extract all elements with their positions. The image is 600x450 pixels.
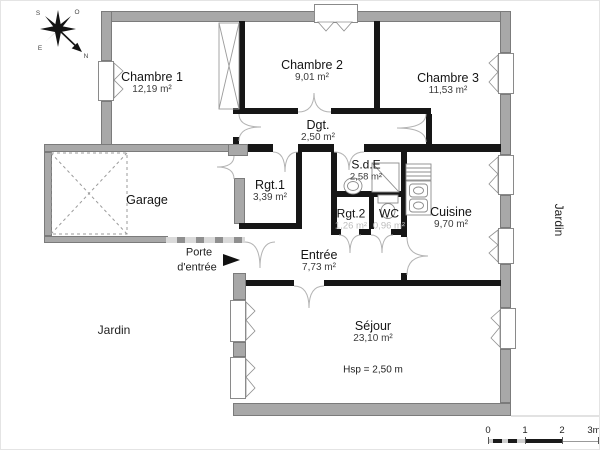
- window-sejour-left-1: [230, 300, 246, 342]
- room-area: 9,70 m²: [430, 219, 472, 231]
- room-area: 2,50 m²: [301, 132, 335, 144]
- entry-arrow-icon: [223, 254, 240, 266]
- exterior-wall-left-lower: [101, 101, 112, 145]
- scale-bar-segment-line: [562, 441, 598, 442]
- scale-bar-tick-mark-3: [598, 437, 599, 444]
- hall-wall-seg2: [298, 144, 334, 152]
- room-label-rgt1: Rgt.1 3,39 m²: [253, 178, 287, 204]
- scale-bar-dash-1: [493, 439, 502, 443]
- exterior-wall-right-5: [500, 349, 511, 403]
- room-label-chambre2: Chambre 2 9,01 m²: [281, 58, 343, 84]
- room-area: 11,53 m²: [417, 85, 479, 97]
- parking-spot-marking: [51, 153, 127, 234]
- scale-bar-dash-2: [508, 439, 517, 443]
- garage-wall-top: [44, 144, 233, 152]
- rgt1-wall-left-corner: [228, 144, 248, 156]
- room-area: 12,19 m²: [121, 84, 183, 96]
- chambre2-chambre3-wall: [374, 21, 380, 114]
- exterior-wall-top: [101, 11, 511, 22]
- sejour-wall-left-b: [233, 342, 246, 357]
- rgt1-wall-right: [296, 152, 302, 229]
- window-sejour-left-2: [230, 357, 246, 399]
- room-name: Chambre 2: [281, 58, 343, 72]
- room-area: 2,58 m²: [350, 172, 382, 183]
- scale-tick-1-label: 1: [522, 425, 527, 436]
- kitchen-sink-symbol: [406, 181, 431, 215]
- scale-tick-3-label: 3m: [587, 425, 600, 436]
- compass-south-label: S: [36, 10, 41, 17]
- room-area: 7,73 m²: [301, 262, 338, 274]
- room-area: 3,39 m²: [253, 192, 287, 204]
- front-fence-dashed-wall: [166, 237, 245, 243]
- window-sejour-right: [500, 308, 516, 349]
- rgt1-wall-left: [234, 178, 245, 224]
- sejour-wall-top-right: [324, 280, 501, 286]
- room-name: WC: [373, 208, 405, 222]
- room-name: Garage: [126, 193, 168, 207]
- room-name: Cuisine: [430, 205, 472, 219]
- room-name: Séjour: [353, 319, 392, 333]
- room-area: 0,96 m²: [373, 221, 405, 232]
- room-label-sejour: Séjour 23,10 m²: [353, 319, 392, 345]
- window-cuisine-2: [498, 228, 514, 264]
- exterior-wall-right-3: [500, 195, 511, 228]
- garden-label-right: Jardin: [551, 204, 565, 237]
- room-label-chambre1: Chambre 1 12,19 m²: [121, 70, 183, 96]
- scale-tick-0-label: 0: [485, 425, 490, 436]
- scale-bar-segment-solid: [525, 439, 562, 443]
- compass-icon: S O E N: [36, 9, 89, 60]
- dgt-chambre3-wall: [426, 114, 432, 148]
- closet-wall: [239, 21, 245, 113]
- window-chambre2: [314, 4, 358, 23]
- entry-door-label-line2: d'entrée: [177, 262, 216, 275]
- chambre3-wall-bottom-upper: [379, 108, 431, 114]
- scale-bar-tick-mark-2: [562, 437, 563, 444]
- room-name: Chambre 1: [121, 70, 183, 84]
- floor-plan: S O E N: [0, 0, 600, 450]
- chambre1-dgt-stub-bottom: [233, 137, 239, 144]
- room-label-dgt: Dgt. 2,50 m²: [301, 118, 335, 144]
- room-label-entree: Entrée 7,73 m²: [301, 248, 338, 274]
- room-name: Entrée: [301, 248, 338, 262]
- exterior-wall-left-upper: [101, 11, 112, 61]
- entry-door-label-line1: Porte: [186, 247, 212, 260]
- exterior-wall-right-1: [500, 11, 511, 53]
- hob-symbol: [406, 164, 431, 180]
- window-chambre3: [498, 53, 514, 94]
- room-name: Rgt.2: [335, 208, 367, 222]
- hall-wall-seg3: [364, 144, 501, 152]
- exterior-wall-bottom: [233, 403, 511, 416]
- room-area: 23,10 m²: [353, 333, 392, 345]
- window-chambre1: [98, 61, 114, 101]
- scale-tick-2-label: 2: [559, 425, 564, 436]
- room-label-rgt2: Rgt.2 1,26 m²: [335, 208, 367, 233]
- sejour-wall-top-left: [246, 280, 294, 286]
- garage-wall-bottom: [44, 236, 168, 243]
- garage-wall-left: [44, 152, 52, 236]
- room-area: 1,26 m²: [335, 221, 367, 232]
- room-name: S.d.E: [350, 159, 382, 173]
- rgt1-wall-bottom: [239, 223, 302, 229]
- room-label-wc: WC 0,96 m²: [373, 208, 405, 233]
- window-cuisine-1: [498, 155, 514, 195]
- room-label-sde: S.d.E 2,58 m²: [350, 159, 382, 184]
- ceiling-height-note: Hsp = 2,50 m: [343, 364, 403, 376]
- chambre2-wall-bottom-left: [239, 108, 298, 114]
- room-label-chambre3: Chambre 3 11,53 m²: [417, 71, 479, 97]
- garden-label-bottom: Jardin: [98, 324, 131, 338]
- room-name: Dgt.: [301, 118, 335, 132]
- scale-bar-tick-mark-1: [525, 437, 526, 444]
- compass-east-label: E: [38, 45, 43, 52]
- chambre1-dgt-stub-top: [233, 108, 239, 114]
- exterior-wall-right-4: [500, 264, 511, 308]
- room-name: Chambre 3: [417, 71, 479, 85]
- closet-symbol: [219, 23, 239, 109]
- room-name: Rgt.1: [253, 178, 287, 192]
- room-label-garage: Garage: [126, 193, 168, 207]
- exterior-wall-right-2: [500, 94, 511, 155]
- hall-wall-seg1: [248, 144, 273, 152]
- room-area: 9,01 m²: [281, 72, 343, 84]
- sejour-wall-left-a: [233, 273, 246, 300]
- compass-north-label: N: [84, 53, 89, 60]
- room-label-cuisine: Cuisine 9,70 m²: [430, 205, 472, 231]
- compass-west-label: O: [74, 9, 79, 16]
- scale-bar-tick-mark-0: [488, 437, 489, 444]
- chambre2-wall-bottom-right: [331, 108, 379, 114]
